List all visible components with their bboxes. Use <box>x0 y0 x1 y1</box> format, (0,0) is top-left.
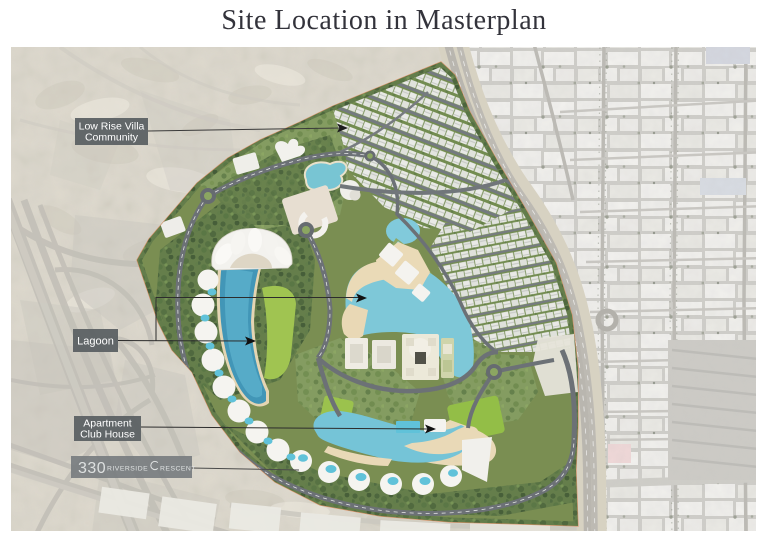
svg-text:RESCENT: RESCENT <box>160 466 196 473</box>
svg-text:Lagoon: Lagoon <box>77 336 114 348</box>
svg-text:RIVERSIDE: RIVERSIDE <box>107 466 148 473</box>
svg-text:Community: Community <box>85 132 139 144</box>
svg-text:330: 330 <box>78 460 106 477</box>
svg-text:Club House: Club House <box>80 429 135 441</box>
